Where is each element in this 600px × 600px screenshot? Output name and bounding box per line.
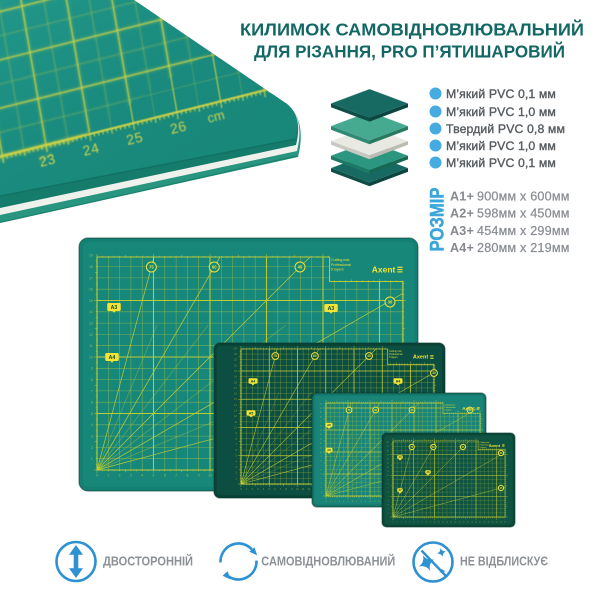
svg-text:598мм x 450мм: 598мм x 450мм xyxy=(477,207,570,221)
svg-text:A4: A4 xyxy=(109,355,116,361)
svg-text:Axent: Axent xyxy=(413,355,428,361)
svg-text:454мм x 299мм: 454мм x 299мм xyxy=(477,224,570,238)
svg-text:Axent: Axent xyxy=(489,443,501,448)
svg-text:ДВОСТОРОННІЙ: ДВОСТОРОННІЙ xyxy=(103,554,193,569)
svg-text:ДЛЯ РІЗАННЯ, PRO П’ЯТИШАРОВИЙ: ДЛЯ РІЗАННЯ, PRO П’ЯТИШАРОВИЙ xyxy=(254,43,565,62)
svg-text:М’який PVC 1,0 мм: М’який PVC 1,0 мм xyxy=(446,139,556,153)
svg-text:25: 25 xyxy=(496,522,498,524)
svg-text:24: 24 xyxy=(492,522,494,524)
svg-text:10: 10 xyxy=(387,475,389,477)
svg-text:5: 5 xyxy=(388,496,389,498)
svg-text:75: 75 xyxy=(149,265,154,270)
svg-text:0: 0 xyxy=(96,473,98,477)
svg-text:A2+: A2+ xyxy=(450,207,474,221)
svg-text:8: 8 xyxy=(388,484,389,486)
svg-text:9: 9 xyxy=(198,473,200,477)
svg-text:8: 8 xyxy=(91,378,93,382)
svg-text:11: 11 xyxy=(438,522,440,524)
svg-text:Cutting mat: Cutting mat xyxy=(445,403,456,406)
svg-text:РОЗМІР: РОЗМІР xyxy=(428,187,449,251)
svg-text:6: 6 xyxy=(91,401,93,405)
svg-text:5 layers: 5 layers xyxy=(445,410,452,412)
svg-text:A5: A5 xyxy=(327,423,331,427)
svg-text:8: 8 xyxy=(426,522,427,524)
svg-text:75: 75 xyxy=(347,408,351,412)
svg-text:Cutting mat: Cutting mat xyxy=(331,258,349,262)
svg-text:280мм x 219мм: 280мм x 219мм xyxy=(477,241,570,255)
svg-text:22: 22 xyxy=(483,522,485,524)
svg-text:7: 7 xyxy=(388,488,389,490)
svg-text:10: 10 xyxy=(89,355,93,359)
svg-text:5 layers: 5 layers xyxy=(389,356,398,359)
svg-text:10: 10 xyxy=(208,473,212,477)
svg-text:17: 17 xyxy=(463,522,465,524)
svg-text:7: 7 xyxy=(175,473,177,477)
svg-text:М’який PVC 0,1 мм: М’який PVC 0,1 мм xyxy=(446,156,556,170)
svg-text:20: 20 xyxy=(475,522,477,524)
svg-text:75: 75 xyxy=(274,354,278,358)
svg-text:5: 5 xyxy=(413,522,414,524)
svg-text:15: 15 xyxy=(89,299,93,303)
svg-text:A6: A6 xyxy=(327,448,331,452)
svg-text:4: 4 xyxy=(141,473,143,477)
svg-text:19: 19 xyxy=(471,522,473,524)
svg-text:КИЛИМОК САМОВІДНОВЛЮВАЛЬНИЙ: КИЛИМОК САМОВІДНОВЛЮВАЛЬНИЙ xyxy=(240,21,584,40)
svg-text:26: 26 xyxy=(500,522,502,524)
svg-text:4: 4 xyxy=(388,500,389,502)
svg-text:17: 17 xyxy=(89,276,93,280)
svg-text:6: 6 xyxy=(388,492,389,494)
svg-text:6: 6 xyxy=(417,522,418,524)
svg-text:2: 2 xyxy=(119,473,121,477)
svg-text:17: 17 xyxy=(387,446,389,448)
svg-text:A5: A5 xyxy=(249,411,254,415)
svg-text:2: 2 xyxy=(388,508,389,510)
svg-text:5: 5 xyxy=(153,473,155,477)
svg-text:0: 0 xyxy=(393,522,394,524)
svg-text:4: 4 xyxy=(409,522,410,524)
svg-text:3: 3 xyxy=(130,473,132,477)
svg-text:8: 8 xyxy=(186,473,188,477)
svg-text:3: 3 xyxy=(405,522,406,524)
svg-text:19: 19 xyxy=(89,254,93,258)
svg-text:60: 60 xyxy=(374,408,378,412)
svg-text:A4+: A4+ xyxy=(450,241,474,255)
svg-text:1: 1 xyxy=(91,457,93,461)
svg-text:900мм x 600мм: 900мм x 600мм xyxy=(477,189,570,203)
svg-text:М’який PVC 1,0 мм: М’який PVC 1,0 мм xyxy=(446,105,556,119)
svg-text:30: 30 xyxy=(432,371,436,375)
svg-text:16: 16 xyxy=(89,288,93,292)
svg-text:14: 14 xyxy=(89,310,93,314)
svg-text:7: 7 xyxy=(91,389,93,393)
svg-text:45: 45 xyxy=(410,408,414,412)
svg-text:12: 12 xyxy=(442,522,444,524)
svg-text:Твердий PVC 0,8 мм: Твердий PVC 0,8 мм xyxy=(446,122,565,136)
svg-text:A1+: A1+ xyxy=(450,189,474,203)
svg-text:3: 3 xyxy=(388,504,389,506)
svg-text:Axent: Axent xyxy=(372,264,396,274)
svg-text:A3+: A3+ xyxy=(450,224,474,238)
svg-text:13: 13 xyxy=(446,522,448,524)
svg-text:1: 1 xyxy=(107,473,109,477)
svg-text:11: 11 xyxy=(89,344,93,348)
svg-text:Professional: Professional xyxy=(331,263,351,267)
svg-text:12: 12 xyxy=(89,333,93,337)
svg-text:23: 23 xyxy=(487,522,489,524)
svg-text:A3: A3 xyxy=(111,305,118,311)
svg-text:16: 16 xyxy=(458,522,460,524)
svg-text:4: 4 xyxy=(91,423,93,427)
svg-text:М’який PVC 0,1 мм: М’який PVC 0,1 мм xyxy=(446,87,556,101)
svg-text:12: 12 xyxy=(387,467,389,469)
svg-text:САМОВІДНОВЛЮВАНИЙ: САМОВІДНОВЛЮВАНИЙ xyxy=(261,554,395,569)
svg-text:Axent: Axent xyxy=(462,406,475,411)
svg-text:18: 18 xyxy=(89,265,93,269)
svg-text:60: 60 xyxy=(313,354,317,358)
svg-text:2: 2 xyxy=(401,522,402,524)
svg-text:18: 18 xyxy=(387,442,389,444)
svg-text:30: 30 xyxy=(388,300,393,305)
svg-text:5 layers: 5 layers xyxy=(480,446,487,449)
svg-text:14: 14 xyxy=(387,459,389,461)
svg-text:5 layers: 5 layers xyxy=(331,268,344,272)
svg-text:27: 27 xyxy=(504,522,506,524)
svg-text:16: 16 xyxy=(387,450,389,452)
svg-text:9: 9 xyxy=(388,479,389,481)
svg-text:1: 1 xyxy=(388,513,389,515)
svg-text:11: 11 xyxy=(387,471,389,473)
svg-text:7: 7 xyxy=(422,522,423,524)
svg-text:13: 13 xyxy=(387,463,389,465)
svg-text:18: 18 xyxy=(467,522,469,524)
svg-text:1: 1 xyxy=(397,522,398,524)
svg-text:2: 2 xyxy=(91,446,93,450)
svg-text:60: 60 xyxy=(212,265,217,270)
svg-text:10: 10 xyxy=(434,522,436,524)
svg-text:9: 9 xyxy=(430,522,431,524)
svg-text:НЕ ВІДБЛИСКУЄ: НЕ ВІДБЛИСКУЄ xyxy=(460,555,548,569)
svg-text:15: 15 xyxy=(387,454,389,456)
svg-text:21: 21 xyxy=(479,522,481,524)
svg-text:A3: A3 xyxy=(328,306,335,312)
svg-text:14: 14 xyxy=(450,522,452,524)
svg-text:3: 3 xyxy=(91,434,93,438)
svg-text:5: 5 xyxy=(91,412,93,416)
svg-text:15: 15 xyxy=(454,522,456,524)
svg-text:6: 6 xyxy=(164,473,166,477)
svg-text:13: 13 xyxy=(89,321,93,325)
svg-text:45: 45 xyxy=(298,265,303,270)
svg-text:9: 9 xyxy=(91,367,93,371)
svg-text:45: 45 xyxy=(367,354,371,358)
